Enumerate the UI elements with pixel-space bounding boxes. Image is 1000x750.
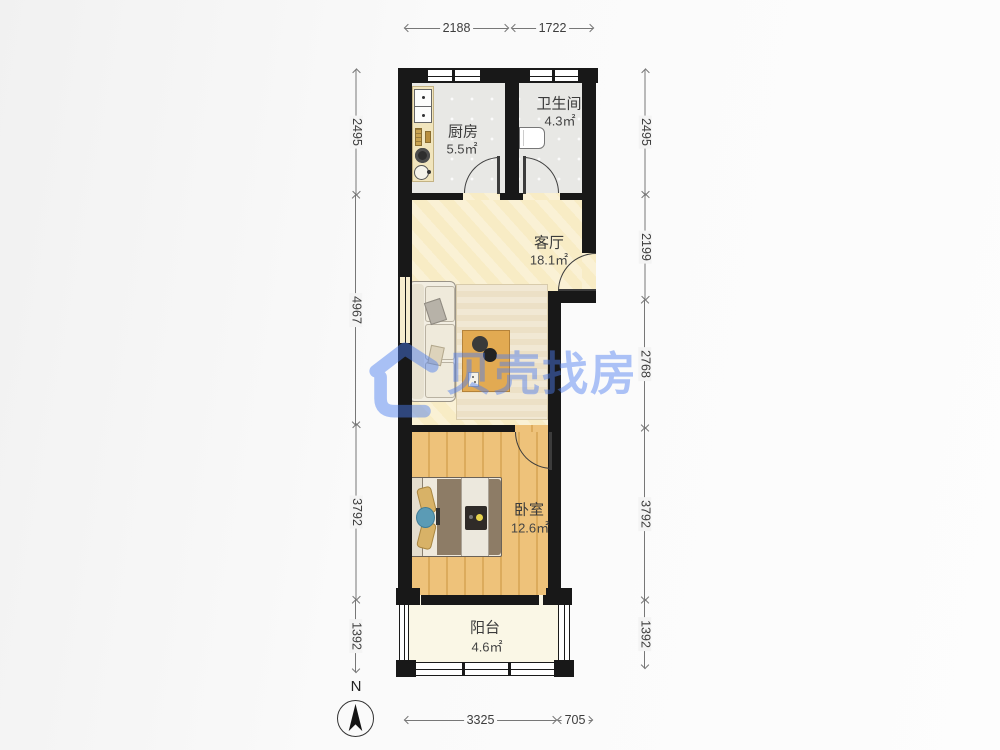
dish-rack (415, 128, 422, 146)
dim-right-3-value: 2768 (639, 347, 652, 381)
dim-right-1-value: 2495 (639, 115, 652, 149)
kitchen-area: 5.5㎡ (446, 139, 477, 158)
dim-top-2-value: 1722 (536, 22, 570, 35)
dim-left-4-value: 1392 (350, 619, 363, 653)
dim-bottom-2: 705 (558, 714, 592, 726)
kitchen-door-opening (463, 193, 500, 200)
stove-burner (415, 148, 430, 163)
dim-bottom-2-value: 705 (562, 714, 589, 727)
washing-machine (519, 127, 545, 149)
bedroom-area: 12.6㎡ (511, 518, 549, 537)
dim-right-2-value: 2199 (639, 230, 652, 264)
wall-entry-step (548, 291, 596, 303)
bed (410, 477, 502, 557)
balcony-window-mullion (462, 662, 465, 676)
dim-left-1-value: 2495 (350, 115, 363, 149)
dim-right-2: 2199 (640, 195, 652, 300)
sink-faucet (427, 170, 431, 174)
balcony-window-bottom (414, 662, 556, 676)
beike-logo-icon (364, 338, 442, 418)
dim-right-4-value: 3792 (639, 497, 652, 531)
living-area: 18.1㎡ (530, 250, 568, 269)
dim-left-4: 1392 (350, 600, 362, 672)
dim-right-3: 2768 (639, 300, 651, 428)
dim-top-2: 1722 (512, 22, 593, 34)
bed-cushion-round (416, 507, 435, 528)
watermark-text: 贝壳找房 (446, 349, 638, 400)
compass-north-label: N (344, 678, 368, 695)
balcony-post-bottom-right (554, 660, 574, 677)
wall-living-bedroom-right (552, 425, 561, 432)
wall-kitchen-south-mid (500, 193, 523, 200)
dim-top-1: 2188 (405, 22, 508, 34)
dim-left-1: 2495 (351, 70, 363, 195)
wall-bedroom-south (412, 595, 548, 605)
balcony-area: 4.6㎡ (471, 637, 502, 656)
balcony-post-top-left (396, 588, 420, 605)
dim-left-3: 3792 (351, 425, 363, 600)
bed-dark-item (436, 508, 440, 525)
floorplan-canvas: 厨房 5.5㎡ 卫生间 4.3㎡ 客厅 18.1㎡ 卧室 12.6㎡ 阳台 4.… (0, 0, 1000, 750)
dim-left-3-value: 3792 (350, 495, 363, 529)
dim-right-5-value: 1392 (639, 617, 652, 651)
bathroom-area: 4.3㎡ (544, 111, 575, 130)
wall-kitchen-bath-partition (505, 83, 519, 193)
kitchen-item (425, 131, 431, 143)
wall-kitchen-south-left (398, 193, 463, 200)
balcony-post-bottom-left (396, 660, 416, 677)
dim-left-2: 4967 (350, 195, 362, 425)
kitchen-window-mullion (452, 68, 455, 83)
dim-right-4: 3792 (639, 428, 651, 600)
bedroom-label: 卧室 (514, 499, 544, 520)
bedroom-door-opening (515, 425, 552, 432)
dim-right-1: 2495 (640, 70, 652, 195)
dim-top-1-value: 2188 (440, 22, 474, 35)
bathroom-door-opening (523, 193, 560, 200)
balcony-window-mullion-2 (508, 662, 511, 676)
bathroom-window-mullion (552, 68, 555, 83)
wall-living-bedroom-left (398, 425, 515, 432)
wall-left-upper (398, 83, 412, 277)
wall-bedroom-south-gap-2 (539, 595, 543, 605)
wall-right-upper (582, 83, 596, 253)
dim-right-5: 1392 (639, 600, 651, 668)
balcony-window-right (558, 605, 570, 662)
compass-icon (337, 700, 374, 737)
dim-bottom-1: 3325 (405, 714, 556, 726)
dim-left-2-value: 4967 (350, 293, 363, 327)
balcony-post-top-right (546, 588, 572, 605)
balcony-window-left (399, 605, 409, 662)
bed-tray (465, 506, 487, 530)
balcony-label: 阳台 (470, 617, 500, 638)
living-window (398, 277, 412, 343)
kitchen-cabinet (414, 89, 432, 123)
dim-bottom-1-value: 3325 (464, 714, 498, 727)
